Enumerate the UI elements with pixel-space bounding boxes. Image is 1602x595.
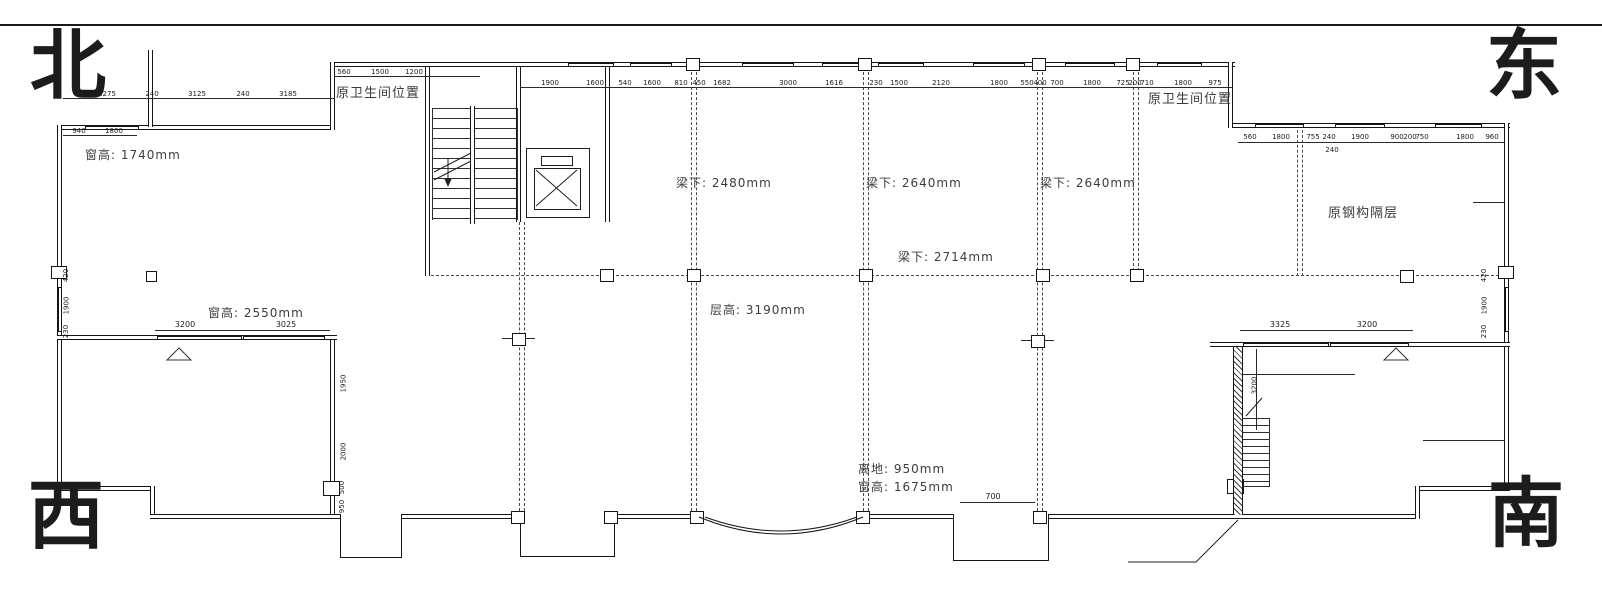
- stair-stringer: [470, 106, 475, 224]
- bathroom-location-label-nw: 原卫生间位置: [336, 86, 420, 102]
- column: [687, 269, 701, 282]
- dim-line-main-top: [520, 87, 1232, 88]
- dim-label: 1800: [105, 128, 123, 135]
- dim-label: 2000: [340, 443, 347, 461]
- beam-height-label-a: 梁下: 2480mm: [676, 176, 772, 190]
- dim-line-stair-top: [335, 76, 480, 77]
- dim-label: 240: [145, 91, 158, 98]
- elevator-right-wall: [605, 67, 610, 222]
- beam-height-label-c: 梁下: 2640mm: [1040, 176, 1136, 190]
- above-ground-label: 离地: 950mm: [858, 462, 945, 476]
- dim-label: 3200: [1357, 321, 1377, 329]
- east-wing-window-3: [1435, 124, 1482, 128]
- dim-label: 755: [1306, 134, 1319, 141]
- column-grid-line-5: [519, 222, 525, 516]
- dim-label: 1600: [586, 80, 604, 87]
- column: [1126, 58, 1140, 71]
- beam-height-label-b: 梁下: 2640mm: [866, 176, 962, 190]
- dim-label: 420: [63, 269, 70, 282]
- south-wall-notch-2: [520, 514, 615, 557]
- north-window-4: [822, 63, 860, 67]
- dim-label: 900: [1390, 134, 1403, 141]
- dim-label: 1200: [405, 69, 423, 76]
- dim-label: 950: [339, 500, 346, 513]
- east-wall-stub-line: [1473, 202, 1504, 203]
- column: [512, 333, 526, 346]
- column: [686, 58, 700, 71]
- elevator-cab-box: [534, 168, 581, 210]
- dim-label: 3000: [779, 80, 797, 87]
- dim-label: 2120: [932, 80, 950, 87]
- dim-label: 1950: [340, 375, 347, 393]
- dim-label: 700: [985, 493, 1000, 501]
- se-stair-break-line: [1246, 398, 1262, 416]
- dim-label: 1500: [371, 69, 389, 76]
- column: [690, 511, 704, 524]
- dim-label: 3125: [188, 91, 206, 98]
- dim-label: 500: [339, 481, 346, 494]
- north-window-3: [742, 63, 794, 67]
- se-hatched-wall: [1233, 347, 1243, 515]
- se-room-window-1: [1243, 343, 1329, 347]
- column: [146, 271, 157, 282]
- dim-line-se-room: [1240, 330, 1413, 331]
- dim-label: 230: [63, 325, 70, 338]
- steel-mezzanine-label: 原钢构隔层: [1328, 206, 1398, 222]
- north-window-5: [878, 63, 924, 67]
- east-wing-window-1: [1255, 124, 1304, 128]
- sheet-top-border: [0, 24, 1602, 26]
- dim-label: 230: [869, 80, 882, 87]
- north-window-6: [973, 63, 1025, 67]
- column-grid-line-3: [1037, 67, 1043, 516]
- column: [1031, 335, 1045, 348]
- west-door-triangle-marker: [167, 348, 191, 360]
- dim-label: 710: [1140, 80, 1153, 87]
- stair-left-wall: [425, 67, 430, 276]
- column-tick: [1021, 340, 1031, 341]
- column: [856, 511, 870, 524]
- column: [600, 269, 614, 282]
- se-wall-shelf-line: [1423, 440, 1504, 441]
- column: [1032, 58, 1046, 71]
- dim-label: 3200: [1251, 377, 1258, 395]
- bathroom-location-label-ne: 原卫生间位置: [1148, 92, 1232, 108]
- east-wing-window-2: [1335, 124, 1385, 128]
- dim-label: 1600: [643, 80, 661, 87]
- dim-label: 1800: [990, 80, 1008, 87]
- dim-label: 1900: [541, 80, 559, 87]
- dim-label: 750: [1415, 134, 1428, 141]
- west-window-height-label: 窗高: 2550mm: [208, 306, 304, 320]
- dim-label: 1800: [1272, 134, 1290, 141]
- north-window-7: [1065, 63, 1115, 67]
- se-room-window-2: [1330, 343, 1409, 347]
- dim-label: 560: [1243, 134, 1256, 141]
- compass-east-label: 东: [1486, 28, 1562, 104]
- dim-label: 700: [1050, 80, 1063, 87]
- beam-height-label-d: 梁下: 2714mm: [898, 250, 994, 264]
- column: [1130, 269, 1144, 282]
- column: [1400, 270, 1414, 283]
- dim-label: 1800: [1456, 134, 1474, 141]
- column-grid-line-6: [1297, 130, 1303, 276]
- column: [604, 511, 618, 524]
- column-grid-line-4: [1133, 67, 1139, 276]
- elevator-door-rect: [541, 156, 573, 166]
- compass-west-label: 西: [28, 478, 104, 554]
- bay-window-wall-gap: [699, 513, 863, 520]
- dim-label: 450: [692, 80, 705, 87]
- column-tick: [1044, 340, 1054, 341]
- dim-label: 240: [236, 91, 249, 98]
- west-room-window-1: [157, 336, 242, 340]
- column: [858, 58, 872, 71]
- beam-grid-line: [431, 275, 1504, 276]
- dim-label: 1500: [890, 80, 908, 87]
- dim-label: 240: [1325, 147, 1338, 154]
- column: [1036, 269, 1050, 282]
- column: [859, 269, 873, 282]
- dim-line-nw-window: [63, 135, 137, 136]
- nw-wing-connector-wall: [330, 62, 335, 130]
- dim-label: 960: [1485, 134, 1498, 141]
- main-staircase-treads: [432, 108, 518, 220]
- south-wall-notch-1: [340, 514, 402, 558]
- column-grid-line-2: [863, 67, 869, 516]
- dim-label: 240: [1322, 134, 1335, 141]
- southeast-step-wall-v: [1415, 486, 1420, 519]
- dim-label: 230: [1481, 325, 1488, 338]
- dim-label: 810: [674, 80, 687, 87]
- east-wall-window: [1505, 287, 1509, 332]
- dim-label: 400: [1033, 80, 1046, 87]
- dim-label: 420: [1481, 269, 1488, 282]
- compass-south-label: 南: [1488, 476, 1564, 552]
- dim-label: 1682: [713, 80, 731, 87]
- column: [511, 511, 525, 524]
- dim-label: 3185: [279, 91, 297, 98]
- dim-label: 540: [618, 80, 631, 87]
- north-window-1: [568, 63, 614, 67]
- floor-plan-canvas: 3275 240 3125 240 3185 940 1800 560 1500…: [0, 0, 1602, 595]
- dim-label: 1616: [825, 80, 843, 87]
- dim-label: 550: [1020, 80, 1033, 87]
- se-door-triangle-marker: [1384, 348, 1408, 360]
- north-window-2: [630, 63, 672, 67]
- dim-label: 975: [1208, 80, 1221, 87]
- column-grid-line-1: [691, 67, 697, 516]
- se-partition-line: [1243, 374, 1355, 375]
- dim-label: 3025: [276, 321, 296, 329]
- dim-label: 560: [337, 69, 350, 76]
- dim-label: 1900: [1351, 134, 1369, 141]
- nw-window-height-label: 窗高: 1740mm: [85, 148, 181, 162]
- dim-label: 1800: [1083, 80, 1101, 87]
- dim-label: 1900: [63, 297, 70, 315]
- column-tick: [525, 338, 535, 339]
- floor-height-label: 层高: 3190mm: [710, 303, 806, 317]
- compass-north-label: 北: [30, 28, 106, 104]
- west-room-window-2: [243, 336, 325, 340]
- dim-line-south-notch: [960, 502, 1035, 503]
- column: [1498, 266, 1514, 279]
- se-leader-line: [1128, 520, 1238, 562]
- dim-label: 1800: [1174, 80, 1192, 87]
- dim-line-west-room: [155, 330, 330, 331]
- south-window-height-label: 窗高: 1675mm: [858, 480, 954, 494]
- column: [1033, 511, 1047, 524]
- dim-label: 1900: [1481, 297, 1488, 315]
- north-party-wall-stub: [148, 50, 153, 127]
- column-tick: [502, 338, 512, 339]
- dim-label: 3325: [1270, 321, 1290, 329]
- dim-label: 3200: [175, 321, 195, 329]
- dim-label: 940: [72, 128, 85, 135]
- north-window-8: [1157, 63, 1202, 67]
- dim-line-east-wing: [1238, 142, 1504, 143]
